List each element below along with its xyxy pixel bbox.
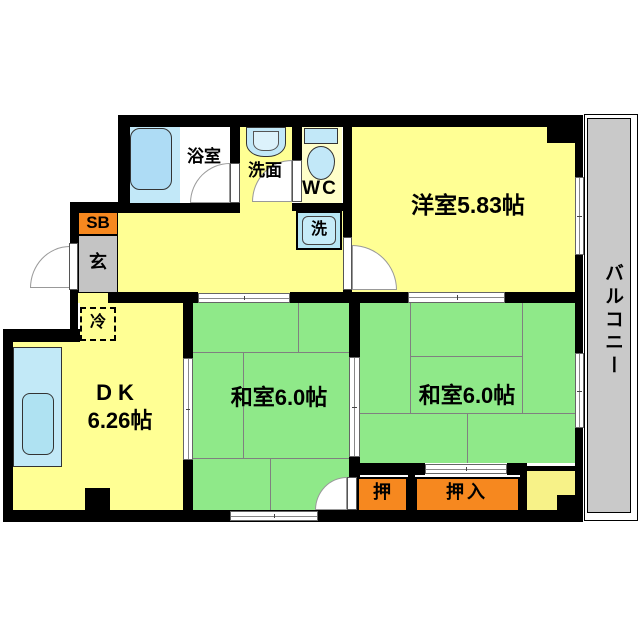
tatami-line — [298, 303, 299, 352]
toilet-tank — [304, 128, 338, 144]
washbasin-bowl — [253, 131, 279, 151]
sliding-door — [349, 357, 360, 457]
tatami-line — [192, 352, 349, 353]
sliding-door — [408, 292, 505, 303]
wall — [527, 466, 577, 471]
dk-size-label: 6.26帖 — [60, 409, 180, 432]
western-room-label: 洋室5.83帖 — [388, 193, 548, 217]
tatami-room-door-leaf — [347, 477, 357, 510]
closet-small-label: 押 — [364, 483, 400, 502]
kitchen-sink — [22, 393, 54, 455]
wall — [70, 202, 78, 243]
dk-label: DK — [70, 381, 166, 404]
wall-step — [557, 495, 577, 510]
wall — [183, 297, 193, 358]
wall — [575, 127, 583, 177]
entrance-label: 玄 — [80, 253, 116, 272]
tatami-line — [410, 356, 522, 357]
window — [230, 511, 318, 521]
balcony-label: バルコニー — [596, 228, 622, 413]
closet-sliding-door — [425, 464, 507, 474]
sliding-door — [183, 358, 193, 460]
wall — [575, 255, 583, 353]
western-room-door-leaf — [343, 237, 352, 290]
wc-label: WC — [296, 179, 344, 199]
wall — [292, 115, 302, 160]
wall — [3, 329, 80, 342]
tatami-line — [270, 458, 271, 510]
fridge-label: 冷 — [82, 315, 114, 332]
bathtub — [130, 128, 172, 190]
wall — [183, 460, 193, 510]
wall-pillar — [85, 488, 110, 510]
tatami-line — [467, 413, 468, 463]
entry-door-arc — [30, 246, 70, 288]
wall — [343, 115, 352, 237]
wall — [408, 472, 415, 512]
wall — [3, 329, 13, 522]
tatami-left-label: 和室6.0帖 — [212, 386, 346, 409]
wall — [118, 115, 130, 213]
floor-plan: 浴室 洗面 WC 洗 洋室5.83帖 バルコニー SB 玄 冷 DK 6.26帖… — [0, 0, 640, 640]
wall — [292, 203, 348, 211]
laundry-label: 洗 — [303, 222, 335, 239]
washroom-label: 洗面 — [236, 162, 294, 180]
wall — [505, 292, 583, 303]
window — [575, 177, 584, 255]
window — [575, 353, 584, 428]
bath-label: 浴室 — [173, 148, 235, 166]
wall — [520, 472, 527, 512]
tatami-right-label: 和室6.0帖 — [400, 384, 534, 407]
shoebox-label: SB — [80, 214, 116, 232]
wall — [118, 203, 240, 213]
closet-large-label: 押入 — [430, 483, 504, 502]
sliding-door — [198, 293, 290, 303]
wall — [349, 292, 360, 357]
entry-door-leaf — [69, 243, 78, 290]
